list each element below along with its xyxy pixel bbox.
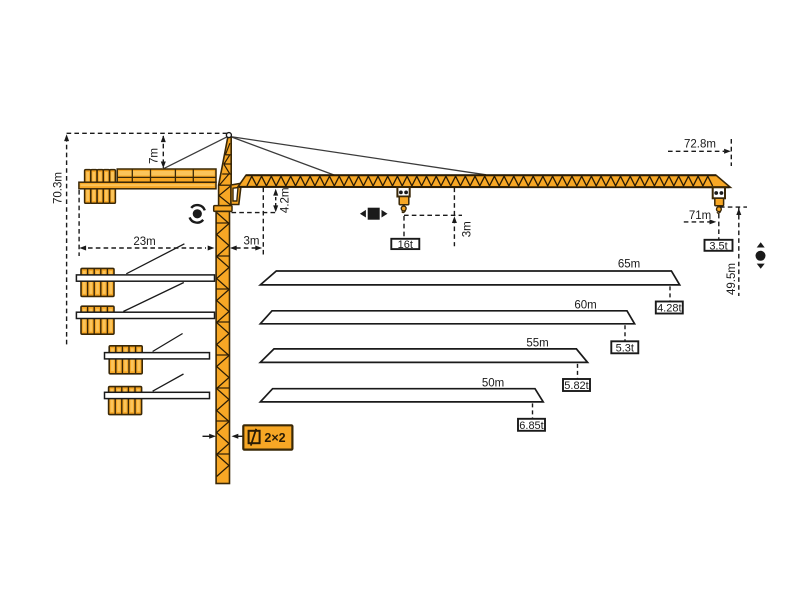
svg-text:5.3t: 5.3t (616, 342, 634, 354)
svg-text:23m: 23m (133, 236, 155, 248)
svg-text:7m: 7m (149, 148, 161, 164)
svg-text:70.3m: 70.3m (52, 172, 64, 204)
svg-text:60m: 60m (574, 299, 596, 311)
svg-text:72.8m: 72.8m (684, 139, 716, 151)
svg-text:50m: 50m (482, 377, 504, 389)
svg-text:49.5m: 49.5m (726, 263, 738, 295)
svg-text:5.82t: 5.82t (564, 380, 588, 392)
svg-text:3m: 3m (244, 236, 260, 248)
svg-text:55m: 55m (526, 338, 548, 350)
svg-text:71m: 71m (689, 210, 711, 222)
svg-text:3.5t: 3.5t (709, 240, 727, 252)
svg-text:6.85t: 6.85t (519, 420, 543, 432)
svg-text:3m: 3m (461, 221, 473, 237)
svg-text:65m: 65m (618, 259, 640, 271)
svg-text:4.28t: 4.28t (657, 303, 681, 315)
svg-text:2×2: 2×2 (264, 431, 285, 445)
svg-text:4.2m: 4.2m (280, 188, 292, 214)
svg-text:16t: 16t (398, 239, 413, 251)
